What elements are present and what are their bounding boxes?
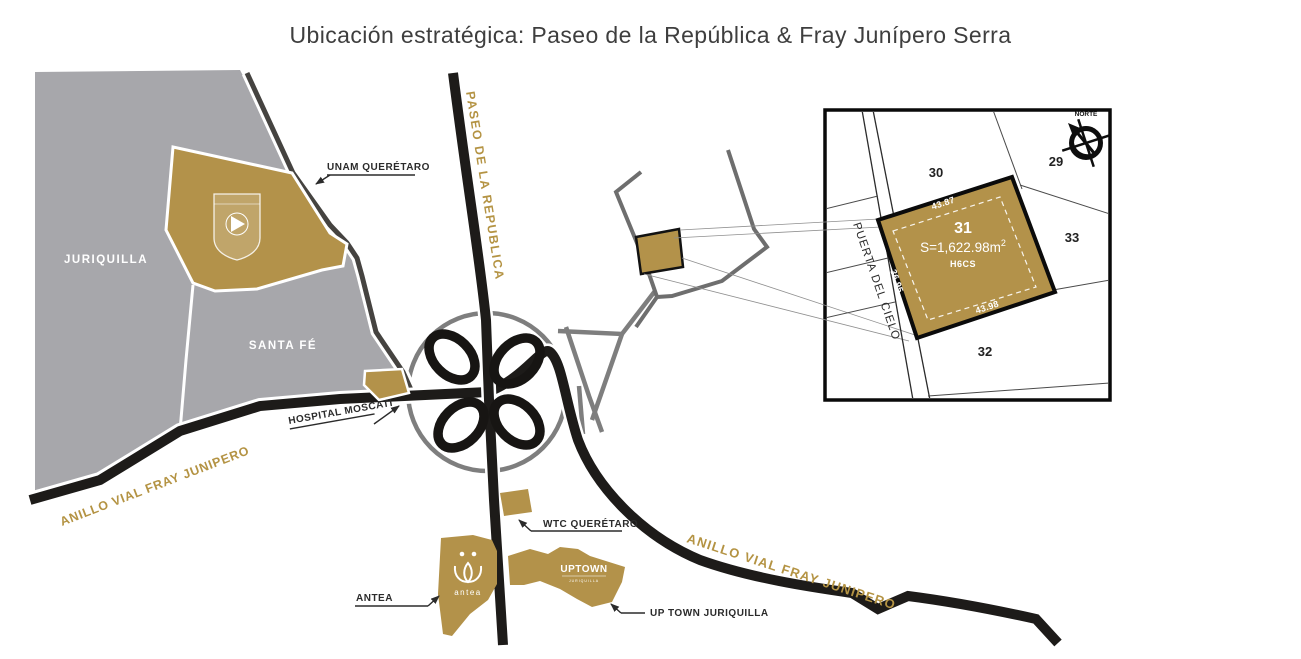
street-right-of-site	[657, 150, 767, 297]
region-label-santa-fe: SANTA FÉ	[249, 339, 317, 352]
region-label-juriquilla: JURIQUILLA	[64, 254, 148, 266]
lot-33-label: 33	[1065, 230, 1079, 245]
uptown-polygon	[508, 547, 625, 607]
clover-loop-sw	[429, 393, 493, 457]
callout-uptown-label: UP TOWN JURIQUILLA	[650, 608, 769, 619]
antea-logo-text: antea	[454, 588, 482, 597]
strategic-location-map: antea UPTOWN JURIQUILLA	[0, 0, 1301, 659]
lot-30-label: 30	[929, 165, 943, 180]
antea-polygon	[438, 535, 497, 636]
ramp-segment	[558, 291, 655, 334]
callout-uptown: UP TOWN JURIQUILLA	[611, 604, 769, 619]
clover-loop-ne	[485, 329, 549, 393]
unam-crest-icon	[214, 194, 260, 260]
callout-wtc: WTC QUERÉTARO	[519, 517, 638, 531]
inset-plat: PUERTA DEL CIELO 30 29 33 32 43.87 43.98…	[644, 110, 1118, 400]
lot-31-zoning-code: H6CS	[950, 259, 976, 269]
location-map-page: Ubicación estratégica: Paseo de la Repúb…	[0, 0, 1301, 659]
callout-antea-label: ANTEA	[356, 593, 393, 604]
lot-29-label: 29	[1049, 154, 1063, 169]
clover-loop-nw	[420, 325, 484, 389]
ramp-segment	[592, 334, 622, 420]
compass-north-label: NORTE	[1075, 111, 1098, 118]
callout-antea-arrow	[428, 596, 439, 606]
lot-31-number: 31	[954, 220, 972, 237]
callout-wtc-arrow	[519, 520, 531, 531]
uptown-logo-subtext: JURIQUILLA	[569, 579, 599, 583]
callout-antea: ANTEA	[355, 593, 439, 606]
callout-wtc-label: WTC QUERÉTARO	[543, 517, 638, 530]
uptown-logo-text: UPTOWN	[560, 564, 607, 575]
site-parcel-polygon	[636, 229, 683, 274]
callout-unam-label: UNAM QUERÉTARO	[327, 160, 430, 173]
callout-unam-arrow	[316, 175, 330, 184]
lot-31-area: S=1,622.98m2	[920, 238, 1006, 255]
callout-unam: UNAM QUERÉTARO	[316, 160, 430, 184]
wtc-polygon	[500, 489, 532, 516]
lot-32-label: 32	[978, 344, 992, 359]
callout-uptown-arrow	[611, 604, 621, 613]
